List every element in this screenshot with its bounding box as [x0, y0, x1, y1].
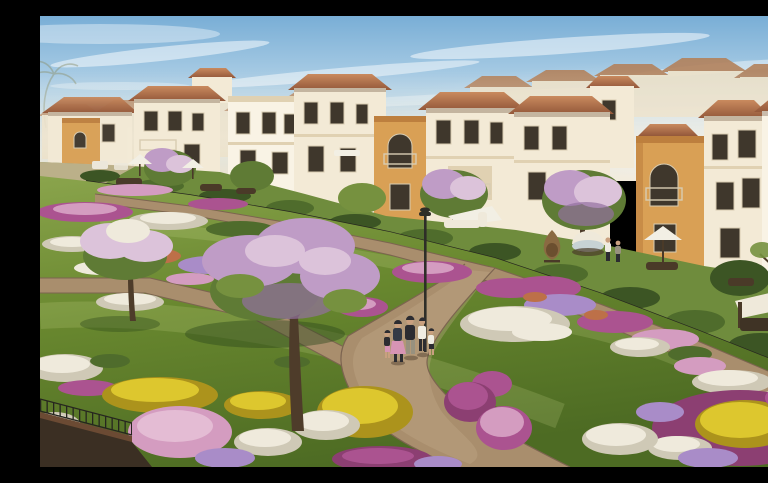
green-tree: [230, 161, 274, 191]
shade-awning: [334, 150, 360, 156]
green-tree: [338, 183, 386, 213]
rendering-image: Mediterranean villa community with linea…: [40, 16, 768, 467]
parked-car: [114, 163, 128, 170]
parked-car: [92, 161, 108, 169]
round-daybed: [572, 231, 604, 256]
pedestrian-man: [405, 316, 415, 354]
villa-1: [42, 97, 138, 170]
villa-7-ochre: [636, 124, 704, 270]
outdoor-sofa: [444, 220, 480, 228]
villa-park-rendering: Mediterranean villa community with linea…: [40, 16, 768, 467]
villa-4-ochre-tower: [374, 116, 428, 224]
